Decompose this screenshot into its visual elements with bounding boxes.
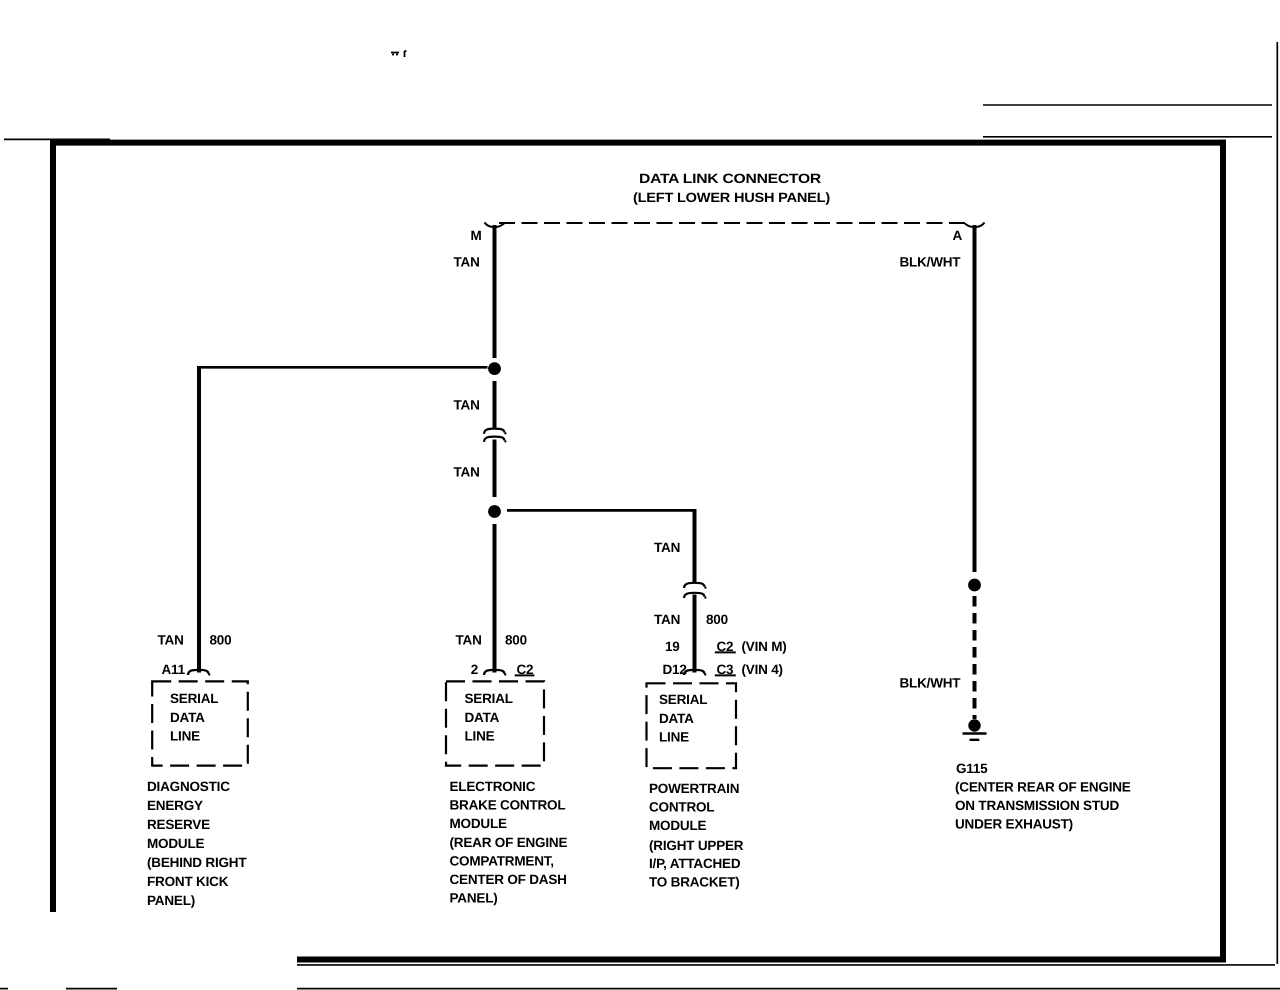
svg-text:(REAR OF ENGINE: (REAR OF ENGINE bbox=[450, 835, 568, 850]
svg-text:ELECTRONIC: ELECTRONIC bbox=[450, 779, 536, 794]
svg-text:RESERVE: RESERVE bbox=[147, 817, 210, 832]
svg-text:(BEHIND RIGHT: (BEHIND RIGHT bbox=[147, 855, 247, 870]
svg-text:DIAGNOSTIC: DIAGNOSTIC bbox=[147, 779, 230, 794]
svg-text:PANEL): PANEL) bbox=[450, 891, 498, 906]
svg-text:BLK/WHT: BLK/WHT bbox=[900, 676, 962, 691]
svg-text:MODULE: MODULE bbox=[450, 816, 507, 831]
svg-text:A11: A11 bbox=[162, 662, 186, 677]
svg-text:2: 2 bbox=[471, 662, 478, 677]
svg-text:800: 800 bbox=[706, 612, 728, 627]
svg-text:POWERTRAIN: POWERTRAIN bbox=[649, 781, 739, 796]
svg-text:MODULE: MODULE bbox=[649, 818, 706, 833]
svg-text:TAN: TAN bbox=[654, 612, 680, 627]
svg-text:(RIGHT UPPER: (RIGHT UPPER bbox=[649, 838, 744, 853]
svg-text:19: 19 bbox=[665, 639, 680, 654]
svg-text:DATA: DATA bbox=[170, 710, 205, 725]
svg-text:DATA: DATA bbox=[465, 710, 500, 725]
svg-text:M: M bbox=[471, 228, 482, 243]
svg-text:(LEFT LOWER HUSH PANEL): (LEFT LOWER HUSH PANEL) bbox=[633, 190, 830, 205]
svg-text:TO BRACKET): TO BRACKET) bbox=[649, 874, 740, 889]
svg-text:800: 800 bbox=[505, 632, 527, 647]
svg-text:BRAKE CONTROL: BRAKE CONTROL bbox=[450, 798, 566, 813]
svg-text:I/P, ATTACHED: I/P, ATTACHED bbox=[649, 856, 741, 871]
svg-text:TAN: TAN bbox=[456, 632, 482, 647]
svg-text:CENTER OF DASH: CENTER OF DASH bbox=[450, 872, 567, 887]
svg-text:MODULE: MODULE bbox=[147, 836, 204, 851]
svg-text:TAN: TAN bbox=[454, 397, 480, 412]
svg-text:(VIN M): (VIN M) bbox=[742, 639, 787, 654]
svg-text:LINE: LINE bbox=[465, 729, 495, 744]
svg-text:SERIAL: SERIAL bbox=[659, 692, 707, 707]
svg-text:ON TRANSMISSION STUD: ON TRANSMISSION STUD bbox=[955, 798, 1119, 813]
svg-text:TAN: TAN bbox=[454, 255, 480, 270]
svg-text:G115: G115 bbox=[956, 761, 988, 776]
svg-text:(VIN 4): (VIN 4) bbox=[742, 662, 783, 677]
svg-text:UNDER EXHAUST): UNDER EXHAUST) bbox=[955, 817, 1073, 832]
svg-text:CONTROL: CONTROL bbox=[649, 799, 714, 814]
svg-text:DATA LINK CONNECTOR: DATA LINK CONNECTOR bbox=[639, 171, 822, 186]
svg-text:COMPATRMENT,: COMPATRMENT, bbox=[450, 853, 554, 868]
svg-text:TAN: TAN bbox=[454, 464, 480, 479]
svg-text:BLK/WHT: BLK/WHT bbox=[900, 255, 962, 270]
svg-text:DATA: DATA bbox=[659, 711, 694, 726]
svg-text:SERIAL: SERIAL bbox=[465, 691, 513, 706]
svg-text:LINE: LINE bbox=[659, 730, 689, 745]
svg-text:LINE: LINE bbox=[170, 729, 200, 744]
svg-text:SERIAL: SERIAL bbox=[170, 691, 218, 706]
svg-text:TAN: TAN bbox=[654, 540, 680, 555]
svg-text:PANEL): PANEL) bbox=[147, 893, 195, 908]
svg-text:(CENTER REAR OF ENGINE: (CENTER REAR OF ENGINE bbox=[955, 780, 1131, 795]
svg-text:FRONT KICK: FRONT KICK bbox=[147, 874, 229, 889]
svg-text:ENERGY: ENERGY bbox=[147, 798, 203, 813]
svg-text:TAN: TAN bbox=[158, 632, 184, 647]
svg-text:A: A bbox=[953, 228, 963, 243]
svg-text:800: 800 bbox=[210, 632, 232, 647]
